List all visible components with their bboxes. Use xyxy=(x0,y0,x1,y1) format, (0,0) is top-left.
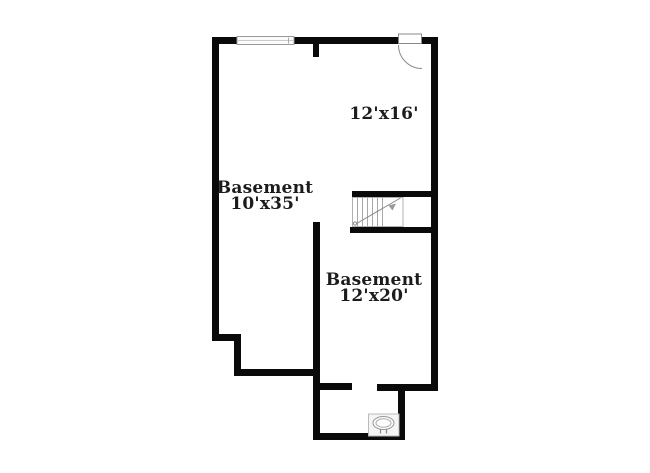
room-label-basement-10x35: Basement 10'x35' xyxy=(185,180,345,212)
stairs-direction-start xyxy=(353,222,356,225)
room-dimensions: 12'x16' xyxy=(304,106,464,122)
stairs-icon xyxy=(353,198,404,227)
wall-right xyxy=(431,37,438,391)
wall-stairs-top xyxy=(352,191,438,197)
wall-bottomright-horizontal xyxy=(377,384,438,391)
utility-icon xyxy=(369,414,400,436)
room-label-basement-12x20: Basement 12'x20' xyxy=(294,272,454,304)
floorplan-image: 12'x16' Basement 10'x35' Basement 12'x20… xyxy=(0,0,650,473)
wall-middle-vertical xyxy=(313,222,320,440)
room-dimensions: 12'x20' xyxy=(294,288,454,304)
wall-top-middle-segment xyxy=(293,37,398,44)
wall-stairs-bottom xyxy=(350,227,438,233)
walls xyxy=(212,37,438,440)
window-icon xyxy=(237,37,294,45)
room-label-12x16: 12'x16' xyxy=(304,106,464,122)
door-icon xyxy=(399,34,423,69)
room-dimensions: 10'x35' xyxy=(185,196,345,212)
wall-utility-top-left xyxy=(320,383,352,390)
floorplan-drawing xyxy=(0,0,650,473)
wall-top-stub xyxy=(313,44,319,57)
wall-leftroom-bottom xyxy=(234,369,320,376)
